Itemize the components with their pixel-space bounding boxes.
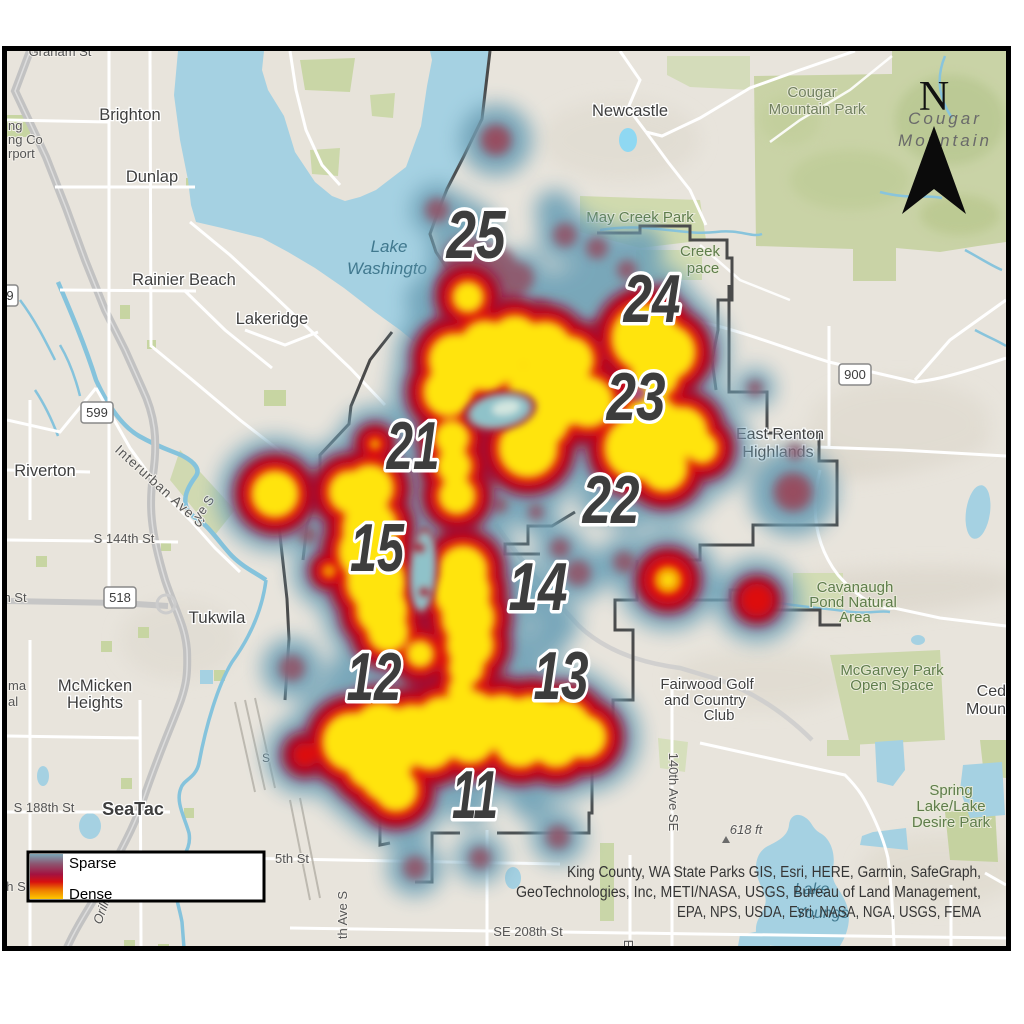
svg-text:SE 208th St: SE 208th St [493,924,563,939]
svg-text:Mountain Park: Mountain Park [769,101,866,118]
svg-text:13: 13 [534,638,589,714]
svg-text:Cougar: Cougar [787,84,836,101]
svg-text:23: 23 [605,359,666,435]
svg-text:ng: ng [8,118,22,133]
svg-text:618 ft: 618 ft [730,822,764,837]
svg-text:h S: h S [6,879,26,894]
svg-text:ng Co: ng Co [8,132,43,147]
svg-text:McMicken: McMicken [58,677,132,695]
svg-text:518: 518 [109,590,131,605]
svg-text:11: 11 [452,757,498,833]
svg-text:N: N [919,74,949,120]
svg-text:Sparse: Sparse [69,855,117,872]
svg-text:Open Space: Open Space [850,677,933,694]
svg-text:Tukwila: Tukwila [189,608,247,627]
svg-text:140th Ave SE: 140th Ave SE [666,753,681,832]
svg-text:22: 22 [581,462,640,538]
svg-text:Brighton: Brighton [99,106,160,124]
svg-text:rport: rport [8,146,35,161]
svg-text:Heights: Heights [67,694,123,712]
svg-text:Spring: Spring [929,782,972,799]
svg-text:Lake/Lake: Lake/Lake [916,798,985,815]
svg-text:Creek: Creek [680,243,721,260]
svg-text:14: 14 [509,549,568,625]
svg-text:Lakeridge: Lakeridge [236,310,308,328]
svg-text:Area: Area [839,609,871,626]
svg-text:Washingto: Washingto [347,259,427,278]
svg-text:5th St: 5th St [275,851,309,866]
svg-text:SeaTac: SeaTac [102,799,164,819]
svg-text:Dunlap: Dunlap [126,168,178,186]
svg-text:12: 12 [347,639,402,715]
svg-text:900: 900 [844,367,866,382]
svg-text:Lake: Lake [371,237,408,256]
svg-text:S 188th St: S 188th St [14,800,75,815]
svg-text:Moun: Moun [966,701,1006,718]
svg-text:Rainier Beach: Rainier Beach [132,271,236,289]
svg-text:S 144th St: S 144th St [94,531,155,546]
svg-text:Ced: Ced [977,683,1006,700]
svg-text:al: al [8,694,18,709]
svg-text:Newcastle: Newcastle [592,102,668,120]
svg-text:21: 21 [385,408,439,484]
svg-text:24: 24 [622,261,681,337]
svg-text:Dense: Dense [69,886,112,903]
svg-text:EPA, NPS, USDA, Esri, NASA, NG: EPA, NPS, USDA, Esri, NASA, NGA, USGS, F… [677,904,982,921]
svg-text:599: 599 [86,405,108,420]
svg-text:pace: pace [687,260,720,277]
svg-text:15: 15 [350,510,405,586]
svg-text:Mountain: Mountain [898,131,992,150]
svg-text:Club: Club [704,707,735,724]
svg-text:GeoTechnologies, Inc, METI/NAS: GeoTechnologies, Inc, METI/NASA, USGS, B… [516,884,981,901]
svg-text:Riverton: Riverton [14,462,75,480]
svg-text:Desire Park: Desire Park [912,814,991,831]
svg-text:King County, WA State Parks GI: King County, WA State Parks GIS, Esri, H… [567,864,981,881]
svg-text:th Ave S: th Ave S [335,891,350,940]
svg-text:9: 9 [6,288,13,303]
svg-text:25: 25 [445,197,506,273]
svg-text:Fairwood Golf: Fairwood Golf [660,676,754,693]
svg-text:ma: ma [8,678,27,693]
